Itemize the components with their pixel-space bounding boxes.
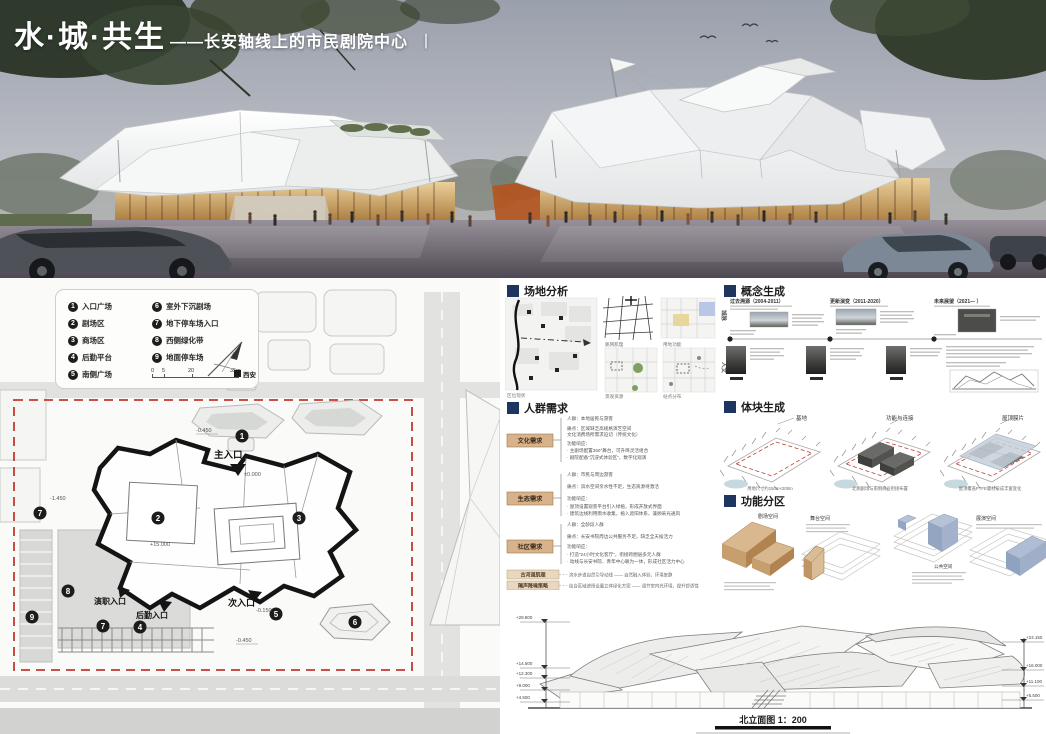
svg-text:· 建筑边线利用雨水收集，植入遮阳体系，兼顾采光通风: · 建筑边线利用雨水收集，植入遮阳体系，兼顾采光通风	[567, 510, 680, 517]
concept-timeline: 城脉 人文 过去溯源（2004-2011） 更新演变（2011-2020） 未来…	[718, 296, 1046, 396]
svg-text:痛点：长安书院周边公共服务不足，缺乏全天候活力: 痛点：长安书院周边公共服务不足，缺乏全天候活力	[567, 533, 673, 540]
lawn	[0, 214, 92, 226]
portrait-name-bar	[730, 377, 743, 380]
svg-text:-0.150: -0.150	[256, 608, 272, 614]
scale-tick: 0	[151, 368, 154, 374]
legend-num: 8	[152, 336, 162, 346]
svg-text:+28.800: +28.800	[516, 615, 533, 620]
step-label: 功能与连接	[886, 414, 914, 422]
step-label: 基地	[796, 414, 808, 422]
svg-text:-0.450: -0.450	[236, 638, 252, 644]
legend-num: 7	[152, 319, 162, 329]
zoning-diagrams: 剧场空间 舞台空间 公共空间	[718, 506, 1046, 612]
svg-text:文化消费场所需求迫切（传统文化）: 文化消费场所需求迫切（传统文化）	[567, 431, 641, 438]
portrait-name-bar	[810, 377, 823, 380]
legend-num: 9	[152, 353, 162, 363]
zoning-label: 舞台空间	[810, 515, 830, 522]
svg-text:4: 4	[138, 623, 143, 632]
legend-item: 2剧场区	[68, 315, 112, 332]
crowd-group-community: 社区需求 人群：全龄段人群 痛点：长安书院周边公共服务不足，缺乏全天候活力 功能…	[507, 521, 685, 565]
extra-label: 隔声降噪策略	[518, 583, 549, 590]
svg-text:· 屋顶设置观景平台引入绿植，形成开放式界面: · 屋顶设置观景平台引入绿植，形成开放式界面	[567, 503, 662, 510]
title-bar: 丨	[418, 28, 434, 52]
extra-label: 古河道肌理	[520, 572, 545, 579]
portrait-photo	[726, 346, 746, 374]
portrait-photo	[806, 346, 826, 374]
svg-text:-0.450: -0.450	[196, 428, 212, 434]
map-roads	[603, 296, 653, 340]
svg-text:6: 6	[353, 618, 358, 627]
elevation-facade	[528, 690, 1032, 708]
legend-num: 4	[68, 353, 78, 363]
crowd-group-ecology: 生态需求 人群：市民与周边游客 痛点：滨水空间亲水性不足，生态资源待激活 功能响…	[507, 471, 680, 517]
svg-text:9: 9	[30, 613, 35, 622]
svg-text:1: 1	[240, 432, 245, 441]
svg-text:+16.000: +16.000	[1026, 663, 1043, 668]
svg-text:+15.000: +15.000	[150, 542, 170, 548]
legend-label: 西侧绿化带	[166, 335, 204, 346]
svg-text:· 剧院配备“沉浸式体验区”，数字化观演: · 剧院配备“沉浸式体验区”，数字化观演	[567, 454, 647, 461]
massing-diagrams: 基地 用地尺寸约150m×200m 功能与连接 北侧剧场与南侧商业衔接布置 屋顶…	[718, 410, 1046, 492]
svg-text:痛点：区域缺乏高规格演艺空间: 痛点：区域缺乏高规格演艺空间	[567, 425, 632, 432]
concept-summary	[946, 346, 1038, 392]
svg-text:人群：本地居民与游客: 人群：本地居民与游客	[567, 415, 613, 422]
svg-text:±0.000: ±0.000	[244, 472, 261, 478]
concept-sketch	[950, 370, 1038, 392]
group-label: 文化需求	[518, 437, 544, 445]
map-location	[505, 298, 597, 390]
performer-entrance-label: 演职入口	[94, 596, 126, 606]
zoning-block-theater: 剧场空间	[722, 513, 794, 590]
legend-num: 6	[152, 302, 162, 312]
svg-text:景观资源: 景观资源	[605, 393, 624, 400]
map-landuse	[661, 298, 715, 338]
elevation-roofs	[540, 626, 1025, 698]
step-caption: 北侧剧场与南侧商业衔接布置	[852, 485, 909, 492]
svg-text:8: 8	[66, 587, 71, 596]
legend-label: 室外下沉剧场	[166, 301, 211, 312]
massing-step-1: 基地 用地尺寸约150m×200m	[720, 414, 820, 492]
logistics-entrance-label: 后勤入口	[136, 610, 168, 620]
zoning-block-stage: 舞台空间	[802, 515, 880, 580]
secondary-entrance-label: 次入口	[228, 597, 255, 608]
svg-text:7: 7	[38, 509, 43, 518]
legend-label: 南侧广场	[82, 369, 112, 380]
svg-text:+12.300: +12.300	[516, 671, 533, 676]
step-caption: 用地尺寸约150m×200m	[747, 485, 793, 492]
north-arrow-icon: 西安	[200, 334, 256, 386]
zoning-block-exhibition: 展演空间	[970, 515, 1046, 576]
svg-text:区位现状: 区位现状	[507, 392, 526, 399]
svg-text:2: 2	[156, 514, 161, 523]
scale-tick: 20	[188, 368, 194, 374]
extra-text: 滨水步道自然引导动线 —— 自然融入体验，环境安静	[569, 572, 673, 579]
svg-text:· 主剧场配置360°舞台，可升降灵活组合: · 主剧场配置360°舞台，可升降灵活组合	[567, 447, 649, 454]
scale-tick: 5	[162, 368, 165, 374]
svg-text:+4.500: +4.500	[516, 695, 530, 700]
legend-num: 5	[68, 370, 78, 380]
legend-item: 6室外下沉剧场	[152, 298, 219, 315]
extra-text: 结合区域遮阳设置立体绿化方案 —— 调节室内光环境，提升舒适性	[569, 583, 699, 590]
concept-period-3: 未来展望（2021— ）	[933, 298, 1040, 335]
zoning-block-public: 公共空间	[894, 514, 972, 584]
legend-label: 入口广场	[82, 301, 112, 312]
legend-num: 3	[68, 336, 78, 346]
presentation-board: 水·城·共生 ——长安轴线上的市民剧院中心 丨 总平面图 场地分析 概念生成 人…	[0, 0, 1046, 734]
north-elevation: +28.800 +14.500 +12.300 +9.000 +4.500 +2…	[500, 612, 1046, 734]
main-entrance-label: 主入口	[214, 449, 243, 461]
site-analysis-maps: 区位现状 路网肌理 用地功能 景观资源 站点分布	[505, 296, 717, 400]
svg-text:· 动线与长安书院、青年中心联为一体，形成社区活力中心: · 动线与长安书院、青年中心联为一体，形成社区活力中心	[567, 558, 685, 565]
massing-step-3: 屋顶膜片 屋顶覆盖PTFE膜材形成丰富变化	[940, 414, 1040, 492]
svg-text:3: 3	[297, 514, 302, 523]
crowd-extra-1: 古河道肌理 滨水步道自然引导动线 —— 自然融入体验，环境安静	[507, 570, 673, 579]
legend-item: 3商场区	[68, 332, 112, 349]
title-subtitle: ——长安轴线上的市民剧院中心	[170, 28, 408, 52]
elevation-caption-text: 北立面图 1：200	[739, 714, 807, 725]
massing-step-2: 功能与连接 北侧剧场与南侧商业衔接布置	[830, 414, 930, 492]
svg-text:路网肌理: 路网肌理	[605, 341, 624, 348]
svg-text:5: 5	[274, 610, 279, 619]
concept-period-2: 更新演变（2011-2020）	[830, 298, 914, 334]
step-label: 屋顶膜片	[1002, 414, 1024, 422]
svg-text:+14.500: +14.500	[516, 661, 533, 666]
concept-portraits	[726, 346, 942, 380]
portrait-photo	[886, 346, 906, 374]
legend-num: 2	[68, 319, 78, 329]
historic-photo	[836, 309, 876, 325]
legend-label: 商场区	[82, 335, 105, 346]
svg-text:用地功能: 用地功能	[663, 341, 682, 348]
legend-num: 1	[68, 302, 78, 312]
group-label: 生态需求	[518, 495, 544, 503]
concept-period-1: 过去溯源（2004-2011）	[730, 298, 824, 335]
elevation-caption: 北立面图 1：200	[696, 714, 850, 733]
building-footprint	[94, 440, 356, 612]
svg-text:人群：市民与周边游客: 人群：市民与周边游客	[567, 471, 613, 478]
svg-text:痛点：滨水空间亲水性不足，生态资源待激活: 痛点：滨水空间亲水性不足，生态资源待激活	[567, 483, 659, 490]
poster-title: 水·城·共生 ——长安轴线上的市民剧院中心 丨	[14, 12, 434, 56]
legend-item: 7地下停车场入口	[152, 315, 219, 332]
period-title: 未来展望（2021— ）	[933, 298, 982, 305]
legend-item: 1入口广场	[68, 298, 112, 315]
svg-text:-1.450: -1.450	[50, 496, 66, 502]
portrait-name-bar	[890, 377, 903, 380]
svg-text:· 打造“24小时文化客厅”，衔接跨圈层多元人群: · 打造“24小时文化客厅”，衔接跨圈层多元人群	[567, 551, 661, 558]
svg-text:人群：全龄段人群: 人群：全龄段人群	[567, 521, 604, 528]
legend-item: 5南侧广场	[68, 366, 112, 383]
crowd-needs-diagram: 文化需求 人群：本地居民与游客 痛点：区域缺乏高规格演艺空间 文化消费场所需求迫…	[505, 412, 718, 590]
concept-axis-label-top: 城脉	[720, 310, 728, 322]
svg-text:功能响应：: 功能响应：	[567, 495, 590, 502]
compass-label: 西安	[243, 370, 256, 379]
zoning-label: 剧场空间	[758, 513, 778, 520]
zoning-label: 公共空间	[934, 563, 953, 570]
map-landscape	[605, 348, 657, 392]
zoning-label: 展演空间	[976, 515, 996, 522]
step-caption: 屋顶覆盖PTFE膜材形成丰富变化	[959, 485, 1022, 492]
svg-text:+9.000: +9.000	[516, 683, 530, 688]
historic-photo	[750, 312, 788, 327]
svg-text:+11.100: +11.100	[1026, 679, 1043, 684]
legend-label: 地下停车场入口	[166, 318, 219, 329]
svg-text:功能响应：: 功能响应：	[567, 440, 590, 447]
period-title: 过去溯源（2004-2011）	[730, 298, 784, 305]
svg-text:+23.150: +23.150	[1026, 635, 1043, 640]
group-label: 社区需求	[517, 543, 544, 551]
svg-text:+5.500: +5.500	[1026, 693, 1040, 698]
svg-text:7: 7	[101, 622, 106, 631]
legend-label: 剧场区	[82, 318, 105, 329]
legend-label: 后勤平台	[82, 352, 112, 363]
crowd-group-culture: 文化需求 人群：本地居民与游客 痛点：区域缺乏高规格演艺空间 文化消费场所需求迫…	[507, 415, 649, 462]
svg-text:功能响应：: 功能响应：	[567, 543, 590, 550]
svg-text:站点分布: 站点分布	[663, 393, 682, 400]
title-main: 水·城·共生	[14, 12, 166, 56]
legend-label: 地面停车场	[166, 352, 204, 363]
map-transit	[663, 348, 715, 392]
legend-column-1: 1入口广场 2剧场区 3商场区 4后勤平台 5南侧广场	[68, 298, 112, 383]
period-title: 更新演变（2011-2020）	[830, 298, 884, 305]
crowd-extra-2: 隔声降噪策略 结合区域遮阳设置立体绿化方案 —— 调节室内光环境，提升舒适性	[507, 581, 699, 590]
legend-item: 4后勤平台	[68, 349, 112, 366]
night-photo	[958, 309, 996, 332]
